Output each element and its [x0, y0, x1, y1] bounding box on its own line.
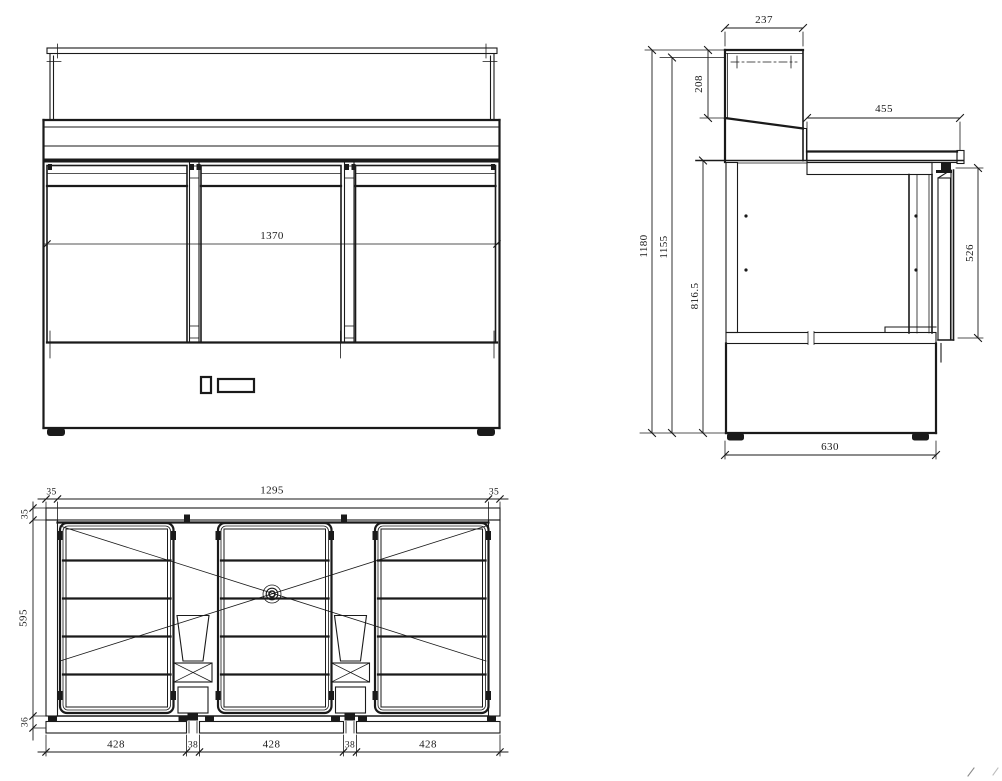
side-dim-526: 526	[956, 168, 983, 338]
plan-diagonals	[60, 526, 486, 661]
door-center-marks	[50, 331, 494, 358]
front-dim-1370: 1370	[44, 230, 501, 247]
front-control-panel	[201, 377, 254, 393]
dim-door-height-label: 526	[964, 244, 976, 262]
fan-assembly-2	[332, 616, 370, 714]
dim-front-rail-label: 36	[21, 717, 31, 727]
side-door-section	[936, 162, 954, 362]
technical-drawing-svg: 1370 237	[0, 0, 1002, 781]
dim-bay1-label: 428	[107, 739, 125, 751]
side-height-dims: 1180 1155 816.5	[638, 50, 730, 433]
plan-walls	[46, 508, 500, 716]
dim-gap1-label: 38	[188, 741, 198, 751]
door-2	[201, 166, 341, 343]
fan-assembly-1	[174, 616, 212, 714]
dim-height-to-worktop-label: 1155	[658, 235, 670, 258]
side-dim-208: 208	[693, 50, 726, 118]
door-1	[47, 166, 187, 343]
dim-side-wall-right-label: 35	[489, 488, 499, 498]
plan-dim-bottom: 428 38 428 38 428	[38, 735, 508, 756]
side-base	[726, 344, 936, 441]
dim-side-wall-left-label: 35	[46, 488, 56, 498]
drawing-canvas: 1370 237	[0, 0, 1002, 781]
front-feet	[47, 428, 495, 436]
wire-shelf-3	[373, 523, 492, 713]
stray-marks	[968, 768, 998, 776]
dim-bay2-label: 428	[263, 739, 281, 751]
dim-base-depth-label: 630	[821, 441, 839, 453]
dim-bay3-label: 428	[419, 739, 437, 751]
plan-dim-top: 35 1295 35	[38, 485, 508, 521]
dim-canopy-depth-label: 237	[755, 14, 773, 26]
door-mullion-1	[190, 163, 200, 343]
side-canopy	[725, 50, 807, 162]
front-doors	[47, 163, 497, 359]
front-view: 1370	[44, 44, 501, 436]
dim-overall-width-label: 1370	[260, 230, 284, 242]
front-worktop-band	[44, 120, 500, 163]
dim-worktop-depth-label: 455	[875, 103, 893, 115]
dim-gap2-label: 38	[345, 741, 355, 751]
dim-overall-height-label: 1180	[638, 234, 650, 257]
wire-shelf-1	[58, 523, 177, 713]
side-cabinet-section	[726, 163, 936, 345]
side-dim-630: 630	[725, 441, 936, 459]
side-view: 237 208 455	[638, 14, 983, 459]
plan-view: 35 1295 35 35 595 36 428 38 428 38 428	[18, 485, 509, 757]
side-dim-237: 237	[725, 14, 803, 46]
door-mullion-2	[345, 163, 355, 343]
plan-dim-left: 35 595 36	[18, 502, 58, 740]
dim-inner-depth-label: 595	[18, 609, 30, 627]
wire-shelf-2	[216, 523, 335, 713]
front-canopy	[47, 44, 497, 120]
dim-canopy-height-label: 208	[693, 75, 705, 93]
dim-inner-width-label: 1295	[260, 485, 284, 497]
dim-back-wall-label: 35	[21, 509, 31, 519]
side-dim-455: 455	[807, 103, 960, 150]
dim-height-to-counter-label: 816.5	[689, 283, 701, 310]
door-3	[356, 166, 496, 343]
